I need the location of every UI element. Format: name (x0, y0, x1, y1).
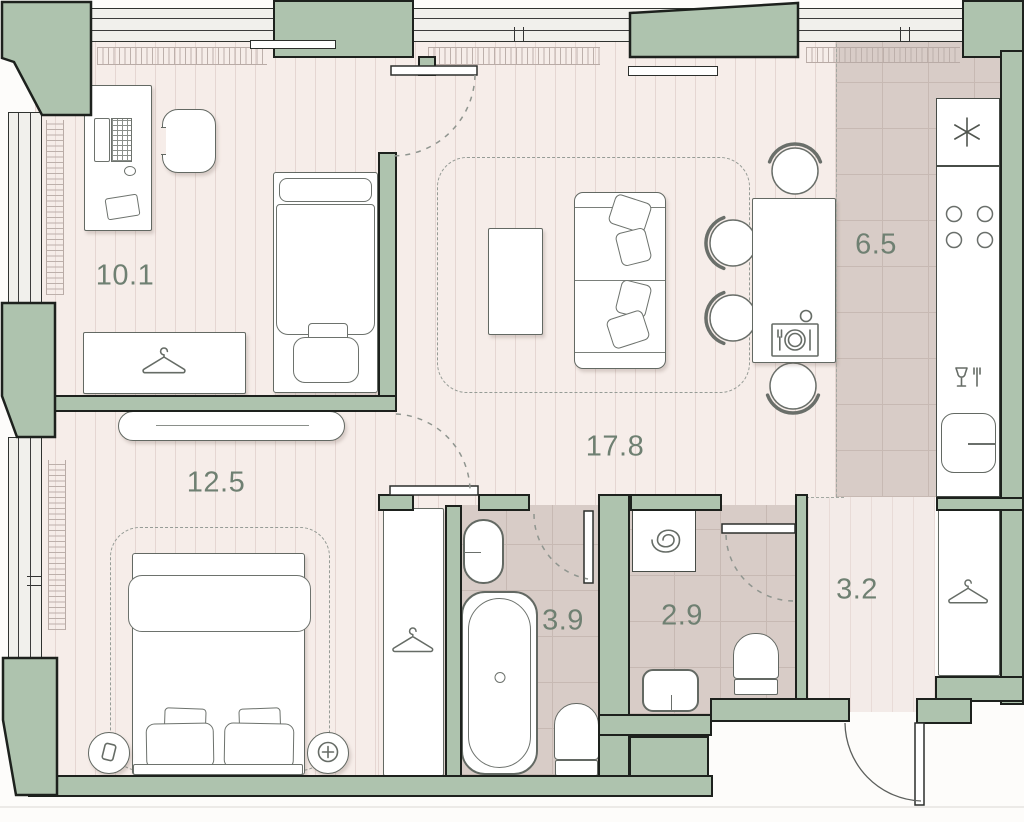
wall-wc-right (795, 494, 808, 714)
kitchen-sink (941, 413, 996, 473)
bedroom-wardrobe (383, 508, 444, 776)
wall-office-living (378, 152, 397, 405)
wall-pier-top-mid (273, 0, 414, 58)
radiator (806, 47, 960, 63)
vent-shaft (629, 736, 709, 777)
office-chair (162, 109, 216, 173)
radiator (428, 47, 600, 65)
fridge (936, 98, 1000, 166)
bathroom-area-label: 3.9 (542, 605, 584, 638)
radiator (97, 47, 267, 65)
headboard-console (118, 411, 345, 441)
window-left-office (8, 112, 42, 308)
hall-floor-boundary-dash (806, 497, 844, 498)
toilet-bowl (554, 703, 599, 760)
sofa-pillow (607, 193, 653, 234)
wall-kitchen-separator (936, 497, 1024, 511)
bathroom-toilet (554, 703, 599, 776)
wall-hall-bottom-right (710, 698, 850, 722)
desk-tablet (104, 194, 140, 221)
double-bed-duvet (128, 575, 311, 632)
desk-mouse (124, 166, 136, 176)
kitchen-floor-boundary-dash (836, 44, 837, 497)
wall-wc-top (630, 494, 722, 511)
coffee-table (488, 228, 543, 335)
office-wardrobe (83, 332, 246, 394)
footer-hairline (0, 806, 1024, 808)
office-chair-seat-notch (161, 127, 166, 155)
wall-hall-bottom-left (598, 714, 712, 736)
bathroom-sink (463, 519, 504, 584)
double-bed-footboard (133, 764, 303, 775)
wc-toilet (733, 633, 779, 695)
bedroom-area-label: 12.5 (187, 467, 245, 500)
kitchen-area-label: 6.5 (855, 229, 897, 262)
wall-bathroom-left (445, 505, 462, 777)
sofa (574, 192, 666, 369)
single-bed-throw (293, 337, 359, 383)
entry-door-arc (845, 723, 921, 801)
entry-door-leaf (915, 723, 924, 805)
wall-pier-tab (418, 56, 436, 76)
console-line (156, 425, 309, 426)
wall-bottom-main (28, 775, 713, 797)
wall-entry-step (916, 698, 972, 724)
hall-area-label: 3.2 (836, 574, 878, 607)
window-mullion (27, 576, 41, 586)
radiator (46, 120, 64, 295)
wall-office-bedroom (28, 395, 397, 412)
bathtub (461, 591, 538, 775)
dining-table (752, 198, 836, 363)
washing-machine (632, 509, 696, 572)
window-sill (250, 40, 336, 49)
bathtub-drain (494, 672, 505, 683)
window-sill (628, 66, 718, 76)
desk-keyboard (111, 118, 132, 162)
toilet-bowl (733, 633, 779, 679)
single-bed-pillow (279, 178, 372, 202)
floor-plan: 10.1 17.8 6.5 12.5 3.9 2.9 3.2 (0, 0, 1024, 822)
window-left-bedroom (8, 437, 42, 662)
double-bed-pillow (224, 722, 295, 769)
wall-bedroom-door-stub (378, 494, 414, 511)
wall-bathroom-top (478, 494, 530, 511)
wall-right (1000, 50, 1024, 705)
window-top (85, 8, 965, 42)
wc-sink (642, 669, 699, 712)
living-area-label: 17.8 (586, 431, 644, 464)
window-mullion (900, 27, 910, 41)
desk (84, 85, 152, 231)
toilet-tank (734, 679, 778, 695)
wc-area-label: 2.9 (661, 600, 703, 633)
single-bed (273, 172, 378, 393)
double-bed (132, 553, 305, 775)
hall-closet (938, 508, 1000, 676)
toilet-tank (555, 760, 598, 776)
desk-monitor (94, 118, 110, 162)
office-area-label: 10.1 (96, 260, 154, 293)
window-mullion (514, 27, 524, 41)
double-bed-pillow (146, 722, 215, 769)
radiator (48, 460, 66, 630)
nightstand-right (307, 732, 349, 774)
single-bed-duvet (276, 204, 375, 335)
nightstand-left (88, 732, 130, 774)
sofa-pillow (614, 227, 652, 267)
